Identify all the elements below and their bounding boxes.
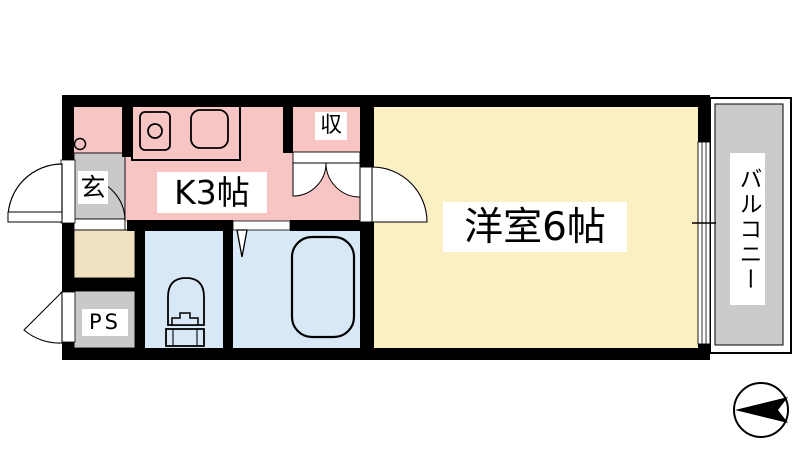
entry-door-frame [61, 160, 75, 223]
toilet-icon [166, 278, 204, 346]
entrance-label: 玄 [78, 171, 108, 204]
pipe-space-label: PS [82, 309, 128, 336]
wall-vanity-ps [62, 278, 145, 291]
entry-door-leaf [8, 212, 62, 222]
room-door-leaf [360, 167, 372, 222]
floor-plan-drawing [0, 0, 800, 450]
closet-door-frame [293, 152, 360, 163]
ps-door-frame [61, 292, 75, 342]
entry-door-swing-icon [8, 164, 62, 218]
storage-label: 収 [315, 112, 347, 140]
toilet-tank [166, 329, 204, 346]
balcony-label: バルコニー [730, 153, 765, 305]
bathtub-icon [292, 237, 354, 337]
western-room-label: 洋室6帖 [443, 202, 627, 252]
wall-divider-upper [360, 107, 374, 167]
wall-closet [283, 107, 293, 153]
wall-right-lower [698, 344, 710, 360]
bath-door-frame [233, 221, 290, 230]
window-frame [698, 142, 710, 344]
vanity-nook-area [74, 230, 135, 278]
wall-divider-lower [360, 222, 374, 348]
wall-right-upper [698, 95, 710, 142]
floor-plan: K3帖 洋室6帖 収 玄 PS バルコニー [0, 0, 800, 450]
kitchen-label: K3帖 [157, 172, 267, 213]
wall-bottom [62, 348, 710, 360]
compass-icon [734, 383, 788, 437]
entrance-step [74, 219, 125, 230]
ps-door-swing-icon [24, 292, 62, 343]
wall-toilet-bath [223, 220, 233, 348]
